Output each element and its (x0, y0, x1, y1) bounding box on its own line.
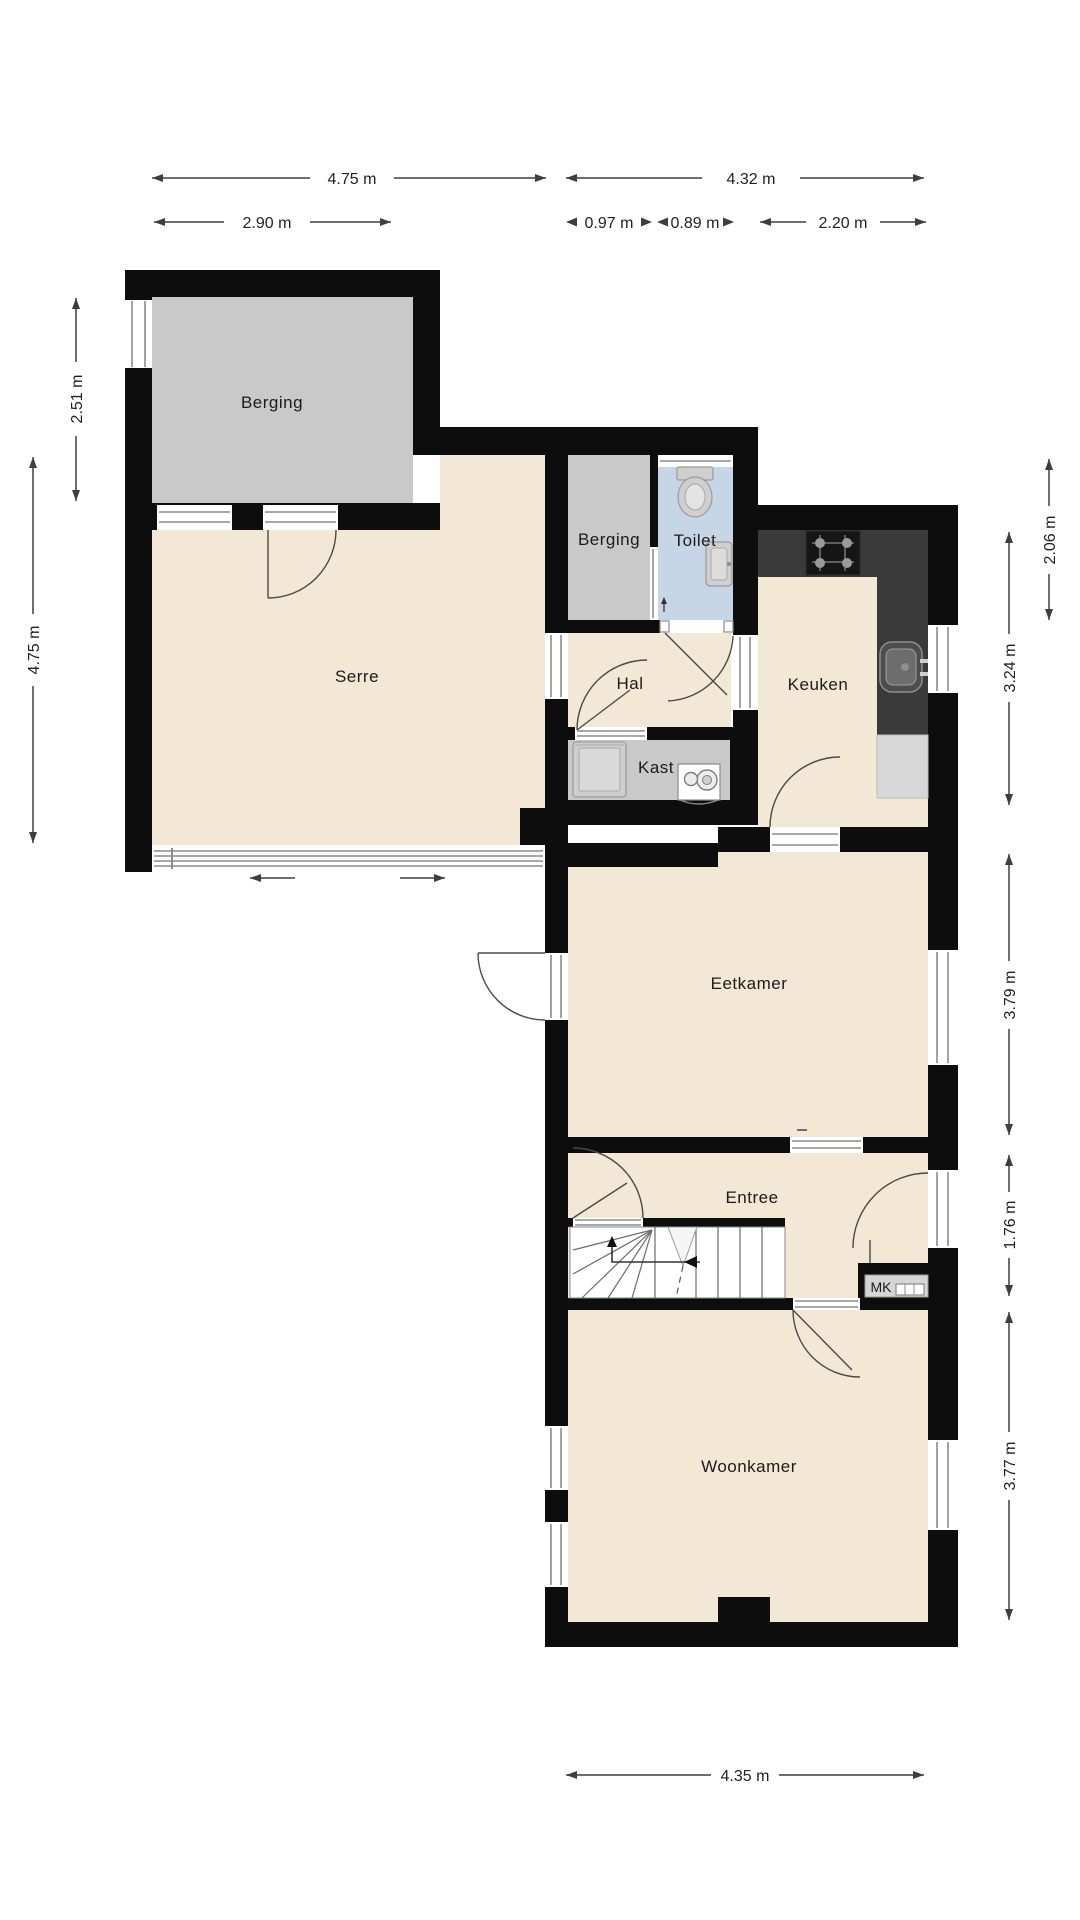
dimension-top-220: 2.20 m (760, 215, 926, 232)
dimension-top-475: 4.75 m (152, 171, 546, 188)
dim-label: 3.24 m (1002, 644, 1019, 693)
dimension-right-176: 1.76 m (1002, 1155, 1019, 1296)
window (125, 300, 152, 368)
window (650, 547, 658, 620)
boiler-icon (678, 764, 720, 804)
sliding-door (152, 845, 545, 878)
stove-icon (806, 531, 860, 575)
floors (152, 297, 928, 1622)
window (928, 950, 958, 1065)
room-label-entree: Entree (725, 1188, 778, 1207)
dim-label: 0.97 m (585, 215, 634, 232)
dim-label: 4.35 m (721, 1768, 770, 1785)
floor-serre-notch (440, 455, 545, 535)
dimension-top-432: 4.32 m (566, 171, 924, 188)
room-label-serre: Serre (335, 667, 379, 686)
room-label-hal: Hal (616, 674, 643, 693)
floor-eetkamer-left (568, 867, 718, 1137)
dim-label: 4.75 m (328, 171, 377, 188)
window (733, 635, 758, 710)
wall (643, 1218, 785, 1227)
dim-label: 4.32 m (727, 171, 776, 188)
wall (568, 1218, 573, 1227)
dimension-right-324: 3.24 m (1002, 532, 1019, 805)
dimension-right-379: 3.79 m (1002, 854, 1019, 1135)
floorplan-page: Berging Serre Berging Toilet Hal Keuken … (0, 0, 1080, 1920)
room-label-mk: MK (871, 1279, 893, 1295)
floorplan-drawing: Berging Serre Berging Toilet Hal Keuken … (0, 0, 1080, 1920)
wall (125, 270, 440, 297)
dim-label: 0.89 m (671, 215, 720, 232)
room-label-keuken: Keuken (788, 675, 849, 694)
room-label-eetkamer: Eetkamer (711, 974, 788, 993)
dim-label: 2.90 m (243, 215, 292, 232)
dim-label: 1.76 m (1002, 1201, 1019, 1250)
room-label-berging-top: Berging (241, 393, 303, 412)
wall (545, 843, 718, 867)
wall (568, 1137, 928, 1153)
dim-label: 2.20 m (819, 215, 868, 232)
toilet-icon (677, 467, 713, 517)
wall-mk-top (865, 1263, 928, 1275)
window (157, 505, 232, 530)
door-eetkamer-exterior (478, 953, 568, 1020)
wall-chimney (718, 1597, 770, 1622)
dimension-top-089: 0.89 m (657, 215, 734, 232)
floor-hal (568, 633, 731, 727)
dim-label: 4.75 m (26, 626, 43, 675)
wall (440, 427, 758, 455)
dim-label: 2.06 m (1042, 516, 1059, 565)
wall (413, 270, 440, 455)
room-label-woonkamer: Woonkamer (701, 1457, 797, 1476)
window (928, 1440, 958, 1530)
window (545, 1522, 568, 1587)
counter-right-run (877, 530, 928, 735)
appliance-under-counter (877, 735, 928, 798)
wall (860, 1297, 928, 1310)
room-label-toilet: Toilet (674, 531, 717, 550)
wall (125, 530, 152, 872)
wall (545, 1298, 793, 1310)
dim-label: 3.77 m (1002, 1442, 1019, 1491)
dim-label: 3.79 m (1002, 971, 1019, 1020)
wall (545, 800, 758, 825)
washer-icon (573, 742, 626, 797)
dimension-left-475: 4.75 m (26, 457, 43, 843)
room-label-berging-mid: Berging (578, 530, 640, 549)
dimension-right-377: 3.77 m (1002, 1312, 1019, 1620)
window (928, 625, 958, 693)
window (545, 1426, 568, 1490)
dimension-top-097: 0.97 m (566, 215, 652, 232)
dim-label: 2.51 m (69, 375, 86, 424)
room-label-kast: Kast (638, 758, 674, 777)
window (658, 455, 733, 467)
wall (545, 1622, 958, 1647)
floor-serre (152, 530, 545, 845)
dimension-bottom-435: 4.35 m (566, 1768, 924, 1785)
dimension-right-206: 2.06 m (1042, 459, 1059, 620)
dimension-top-290: 2.90 m (154, 215, 391, 232)
dimension-left-251: 2.51 m (69, 298, 86, 501)
window (545, 633, 568, 699)
floor-eetkamer-right (718, 852, 928, 1137)
staircase (570, 1227, 785, 1298)
